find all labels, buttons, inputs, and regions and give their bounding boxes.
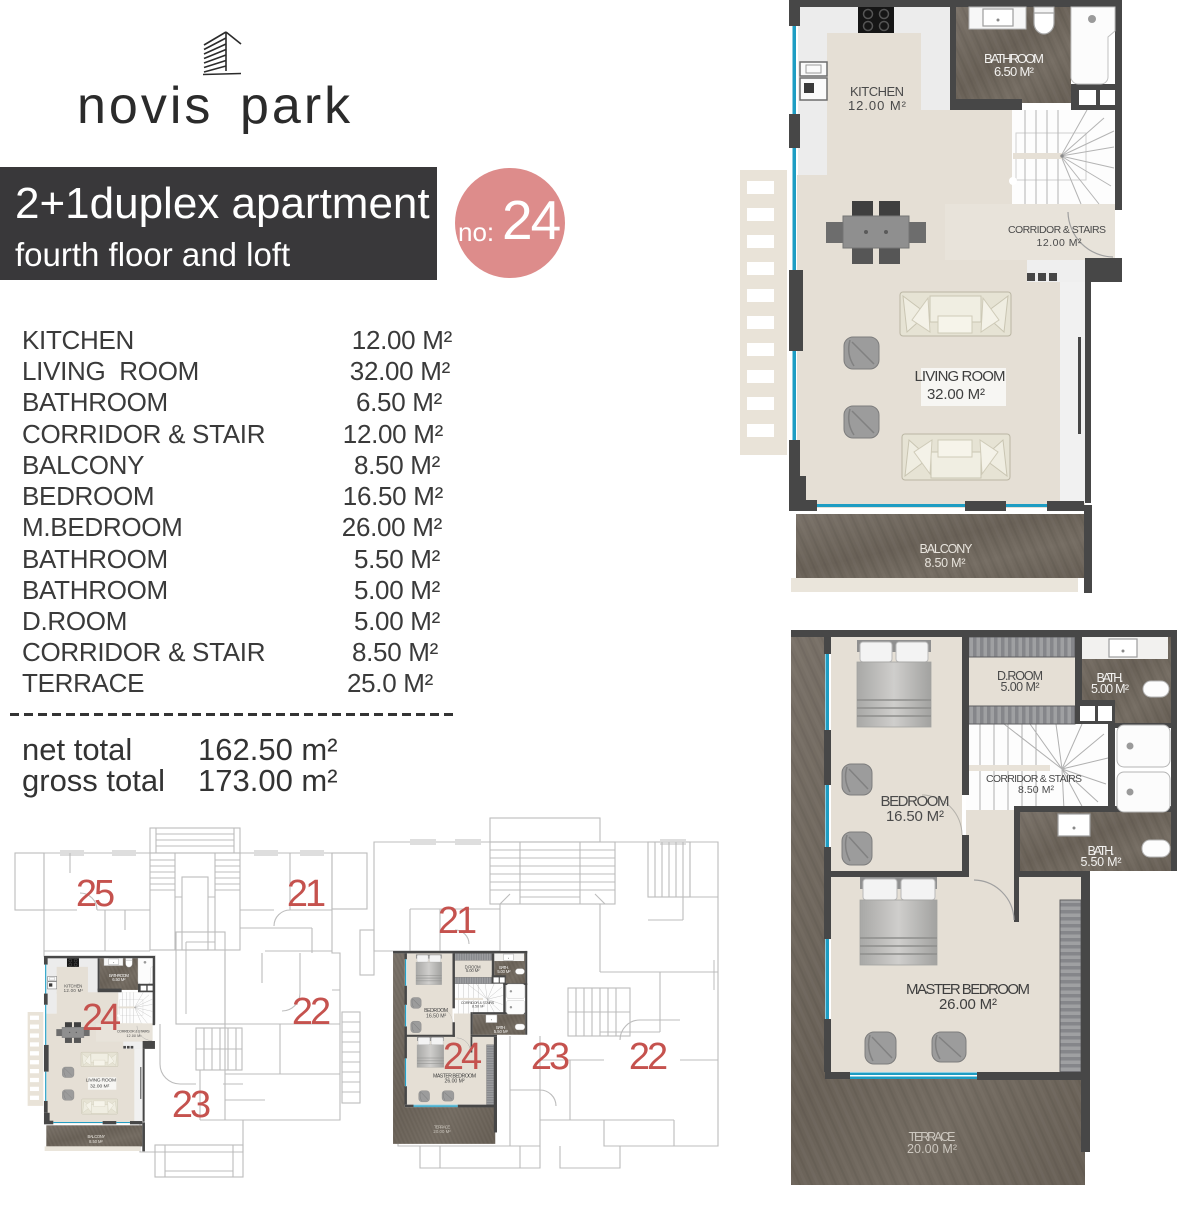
svg-text:8.50 M²: 8.50 M² bbox=[925, 556, 966, 570]
svg-text:24: 24 bbox=[82, 997, 121, 1039]
svg-text:5.00 M²: 5.00 M² bbox=[1001, 680, 1040, 694]
svg-text:21: 21 bbox=[287, 873, 325, 915]
svg-text:5.00 M²: 5.00 M² bbox=[1091, 682, 1129, 696]
svg-text:12.00 M²: 12.00 M² bbox=[1037, 237, 1083, 249]
svg-text:25: 25 bbox=[76, 873, 114, 915]
svg-text:24: 24 bbox=[443, 1036, 482, 1078]
svg-text:8.50 M²: 8.50 M² bbox=[1018, 784, 1055, 796]
svg-text:KITCHEN: KITCHEN bbox=[850, 84, 904, 99]
svg-text:23: 23 bbox=[531, 1036, 569, 1078]
svg-text:CORRIDOR & STAIRS: CORRIDOR & STAIRS bbox=[1008, 224, 1106, 236]
svg-text:12.00 M²: 12.00 M² bbox=[848, 98, 907, 113]
svg-text:21: 21 bbox=[438, 900, 476, 942]
svg-text:BALCONY: BALCONY bbox=[920, 542, 974, 556]
svg-text:5.50 M²: 5.50 M² bbox=[1081, 855, 1122, 869]
svg-text:23: 23 bbox=[172, 1084, 210, 1126]
svg-text:16.50 M²: 16.50 M² bbox=[886, 808, 944, 825]
svg-text:26.00 M²: 26.00 M² bbox=[939, 996, 997, 1013]
svg-text:20.00 M²: 20.00 M² bbox=[907, 1142, 957, 1156]
svg-text:LIVING ROOM: LIVING ROOM bbox=[915, 368, 1006, 385]
svg-text:6.50 M²: 6.50 M² bbox=[994, 64, 1035, 79]
svg-text:22: 22 bbox=[292, 991, 330, 1033]
svg-text:32.00 M²: 32.00 M² bbox=[927, 386, 985, 403]
svg-text:22: 22 bbox=[629, 1036, 667, 1078]
